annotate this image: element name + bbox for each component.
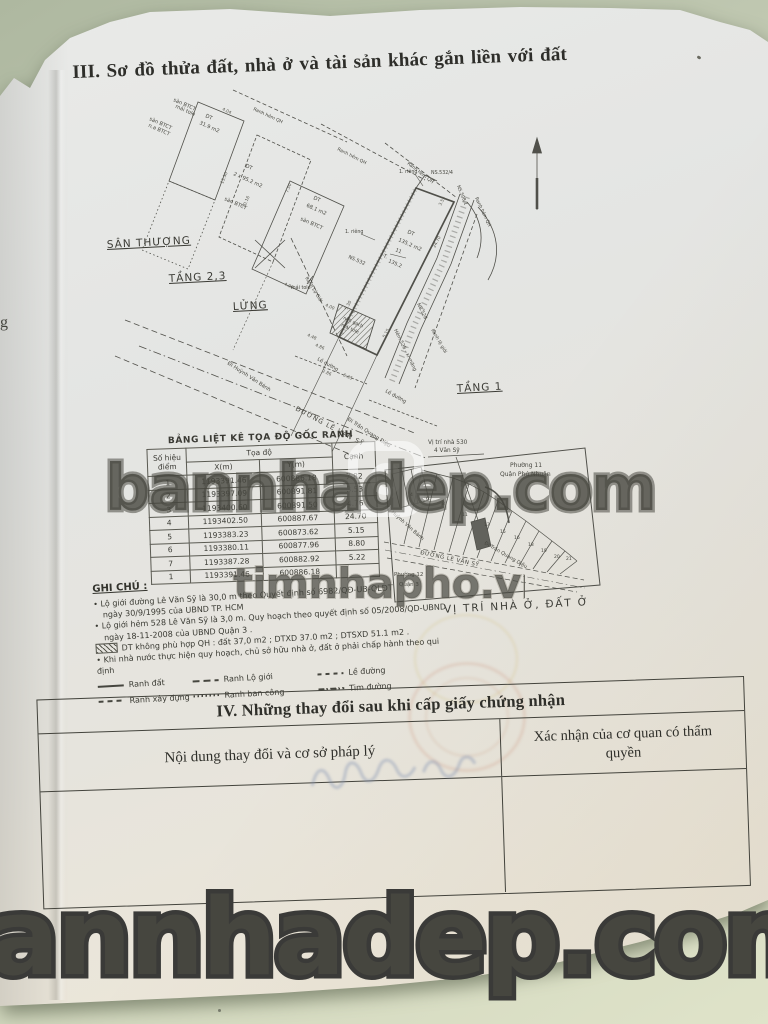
lot-number: 19 [541, 548, 547, 554]
parcel-id-label: NS.532/4 [431, 170, 453, 176]
plan-label: 1. riêng [345, 228, 363, 235]
dim-label: 4.04 [221, 106, 232, 116]
map-label: Đi Huỳnh Văn Bánh [385, 504, 426, 542]
document-photo: g III. Sơ đồ thửa đất, nhà ở và tài sản … [0, 0, 768, 1024]
plan-label: 31.9 m2 [198, 120, 220, 134]
legend-item: Ranh đất [97, 676, 192, 692]
cell: 3 [149, 502, 189, 517]
lot-number: 13 [484, 522, 490, 528]
plan-lung [252, 181, 344, 294]
coordinate-table-block: BẢNG LIỆT KÊ TỌA ĐỘ GỐC RANH Số hiệu điể… [146, 429, 380, 585]
lot-number: 20 [554, 554, 560, 560]
legend-item: Lề đường [317, 663, 427, 680]
lot-number: 15 [500, 529, 506, 535]
coordinate-table: Số hiệu điểm Tọa độ Cạnh X(m) Y(m) 11193… [146, 441, 380, 585]
lot-number: 8 [442, 501, 445, 507]
map-label: Quận Phú Nhuận [500, 471, 551, 478]
cell: 1 [148, 475, 188, 490]
section3-title: III. Sơ đồ thửa đất, nhà ở và tài sản kh… [72, 39, 692, 84]
plan-label: 1. riêng [399, 168, 417, 175]
line-sample-solid [98, 684, 124, 687]
plan-label: DT [312, 195, 322, 204]
lot-fraction: 135.2 [387, 258, 403, 269]
lot-number: 6 [426, 496, 429, 502]
cell: 6 [150, 543, 190, 558]
dim-label: 4.86 [314, 342, 325, 351]
section4-col-right-header: Xác nhận của cơ quan có thẩm quyền [500, 711, 746, 776]
map-label: Vị trí nhà 530 [428, 439, 468, 446]
street-label: Đi Huỳnh Văn Bánh [226, 360, 272, 393]
cadastral-drawing: sàn BTCT mái tole DT 31.9 m2 sàn BTCT n.… [85, 88, 590, 458]
dim-label: 7.50 [284, 182, 293, 193]
dim-label: 4.00 [324, 302, 335, 311]
notes-block: GHI CHÚ : Lộ giới đường Lê Văn Sỹ là 30,… [92, 563, 460, 708]
plan-label: 2 x 95.2 m2 [232, 171, 263, 189]
legend-label: Ranh đất [128, 678, 165, 689]
map-label: Phường 11 [510, 462, 542, 469]
boundary-label: Ranh hẻm QH [336, 146, 368, 167]
map-label: 4 Văn Sỹ [434, 448, 460, 454]
col-header-point: Số hiệu điểm [147, 448, 187, 476]
section4-body-right-cell [502, 769, 750, 892]
legend-label: Ranh Lộ giới [223, 672, 273, 684]
boundary-label: Ranh hẻm QH [252, 105, 284, 125]
drawing-labels: sàn BTCT mái tole DT 31.9 m2 sàn BTCT n.… [106, 96, 502, 449]
floor-title-tang-23: TẦNG 2,3 [167, 268, 226, 285]
lot-number: 16 [514, 535, 520, 541]
street-label: Lề đường [384, 387, 408, 405]
lot-number: 4 [410, 492, 413, 498]
dim-label: 10.16 [241, 195, 251, 209]
dim-label: 13.50 [219, 171, 229, 185]
parcel-id-label: NS.532 [347, 254, 366, 267]
cell: 5 [150, 529, 190, 544]
col-header-edge: Cạnh [331, 442, 375, 470]
cell: 7 [151, 556, 191, 571]
floor-title-san-thuong: SÂN THƯỢNG [106, 234, 191, 251]
lot-fraction: 11 [394, 247, 402, 255]
plan-label: DT [244, 163, 254, 172]
cell: 4 [149, 516, 189, 531]
plan-label: DT [204, 113, 214, 122]
le-van-sy-street-lines [115, 262, 437, 458]
plan-label: 68.1 m2 [305, 203, 327, 217]
area-label: DT [406, 229, 416, 238]
section4-body-left-cell [40, 777, 506, 907]
cell: 2 [148, 489, 188, 504]
lot-number: 21 [566, 556, 572, 562]
street-label: Lề đường [316, 355, 340, 373]
line-sample-dash-long [193, 679, 219, 682]
boundary-label: Ranh lộ giới [429, 328, 449, 355]
lot-number: 11 [462, 512, 468, 518]
plan-label: sàn BTCT [299, 215, 325, 232]
floor-title-lung: LỬNG [232, 297, 268, 313]
north-arrow-icon [533, 138, 542, 210]
lot-number: 18 [528, 542, 534, 548]
boundary-label: Ranh hẻm QH [473, 196, 493, 228]
dim-label: 5.35 [342, 372, 353, 381]
page-content: III. Sơ đồ thửa đất, nhà ở và tài sản kh… [0, 0, 768, 1024]
dim-label: 4.48 [306, 332, 317, 341]
legend-label: Lề đường [348, 666, 386, 677]
line-sample-dash-short [317, 672, 343, 675]
hatch-swatch-icon [95, 643, 118, 654]
ranh-hem-qh-lines [233, 90, 457, 198]
floor-title-tang-1: TẦNG 1 [455, 379, 502, 395]
dim-label: 5.30 [343, 299, 353, 310]
